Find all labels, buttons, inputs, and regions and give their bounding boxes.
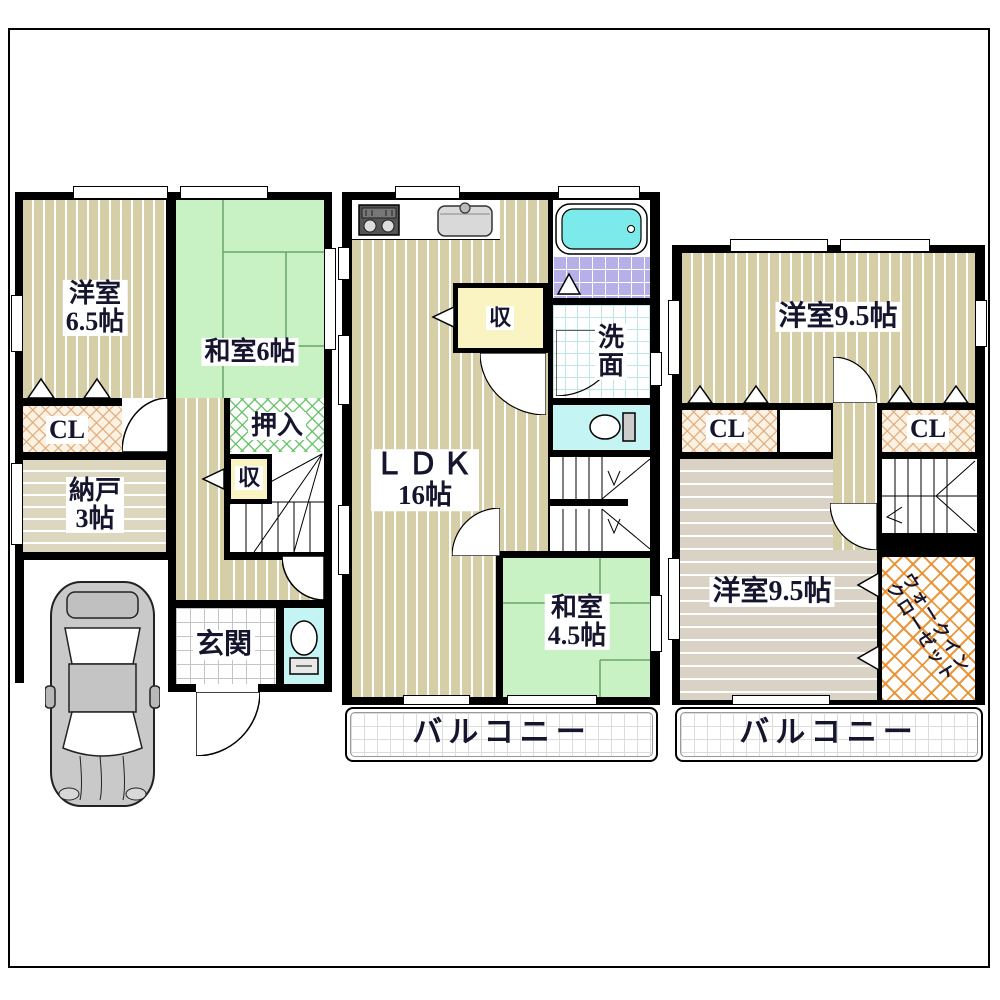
door-marker-arrow [430, 304, 456, 330]
room-label-closet-left-3f: CL [706, 415, 748, 443]
folding-door-markers [886, 384, 976, 404]
window [732, 695, 830, 705]
room-label-small-closet-1f: 収 [235, 466, 263, 490]
window [403, 695, 470, 705]
window [11, 295, 23, 352]
window [975, 300, 987, 347]
stairs-icon [882, 459, 977, 533]
floor3-stairs [882, 459, 977, 533]
window [395, 186, 460, 199]
door-marker-arrow [855, 643, 881, 673]
balcony-label-2f: バルコニー [409, 717, 594, 749]
door-marker [556, 272, 582, 296]
window [180, 186, 268, 199]
door-arc [122, 398, 168, 452]
window [338, 335, 350, 405]
window [11, 463, 23, 545]
floor1-door-swing-area [122, 398, 168, 452]
door-arc [282, 556, 324, 600]
room-label-western-room-1f: 洋室6.5帖 [63, 280, 128, 336]
window [668, 558, 680, 640]
room-label-small-closet-2f: 収 [486, 306, 514, 330]
window [338, 247, 350, 280]
balcony-label-3f: バルコニー [736, 717, 921, 749]
floor2-bath-tile [553, 256, 650, 298]
window [650, 352, 662, 386]
car-top-view-icon [45, 578, 160, 810]
toilet-icon [585, 408, 637, 446]
front-door-arc [196, 692, 260, 756]
door-marker-arrow [855, 570, 881, 600]
toilet-icon [284, 608, 324, 684]
window [840, 239, 930, 252]
window [338, 505, 350, 575]
room-label-storage-room: 納戸3帖 [66, 477, 124, 533]
room-label-washroom: 洗面 [595, 324, 627, 380]
door-arc [833, 357, 877, 403]
bathtub-icon [553, 202, 650, 256]
room-label-oshiire: 押入 [248, 412, 306, 440]
room-label-western-room-upper: 洋室9.5帖 [775, 302, 900, 332]
folding-door-markers [686, 384, 776, 404]
floor2-stairs-divider [550, 499, 628, 506]
window [650, 595, 662, 652]
folding-door-markers [26, 377, 118, 399]
gas-stove-icon [358, 204, 400, 236]
room-label-western-room-lower: 洋室9.5帖 [709, 577, 834, 607]
room-label-entrance: 玄関 [193, 630, 255, 660]
floor1-toilet-room [284, 608, 324, 684]
room-label-japanese-room-2f: 和室4.5帖 [545, 594, 610, 650]
floor2-toilet-room [553, 405, 650, 450]
window [324, 248, 336, 350]
floor-plan-canvas: 洋室6.5帖 和室6帖 CL 押入 収 納戸3帖 玄関 [0, 0, 1000, 1000]
floor2-kitchen-counter [352, 200, 500, 240]
kitchen-sink-icon [436, 202, 494, 238]
floor1-hallway [176, 398, 224, 600]
door-arc [830, 503, 877, 550]
room-label-japanese-room-1f: 和室6帖 [201, 338, 298, 366]
window [73, 186, 168, 199]
floor2-bathroom [553, 200, 650, 256]
floor2-wall-h [496, 551, 650, 558]
front-door-gap [196, 684, 258, 692]
tatami-grid-lines [176, 200, 324, 398]
floor3-door-gap [780, 410, 831, 452]
room-label-ldk: ＬＤＫ16帖 [371, 449, 479, 511]
door-marker-arrow [200, 466, 226, 492]
window [730, 239, 828, 252]
floor2-wall-v [496, 558, 503, 697]
floor1-japanese-room [176, 200, 324, 398]
window [668, 300, 680, 375]
room-label-closet-1f: CL [46, 416, 88, 444]
room-label-closet-right-3f: CL [907, 415, 949, 443]
door-arc [480, 353, 546, 415]
window [507, 695, 597, 705]
door-arc [452, 508, 500, 556]
floor1-garage-wall [15, 555, 24, 683]
window [558, 186, 640, 199]
